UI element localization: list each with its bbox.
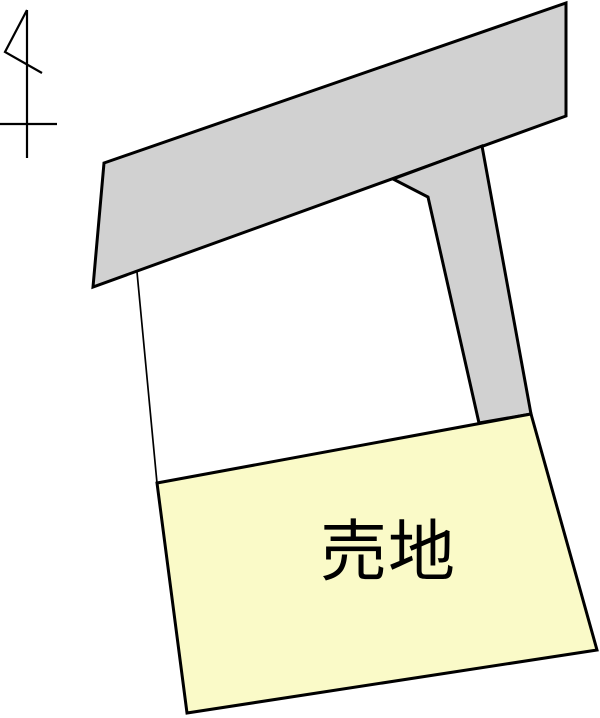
- plot-map-drawing: [0, 0, 600, 718]
- north-arrow-icon: [0, 10, 57, 158]
- adjacent-parcel-boundary-line: [137, 272, 157, 483]
- branch-road-shape: [393, 146, 531, 423]
- sale-parcel-label: 売地: [320, 519, 456, 586]
- north-arrow-flag: [5, 10, 42, 73]
- plot-map-canvas: 売地: [0, 0, 600, 718]
